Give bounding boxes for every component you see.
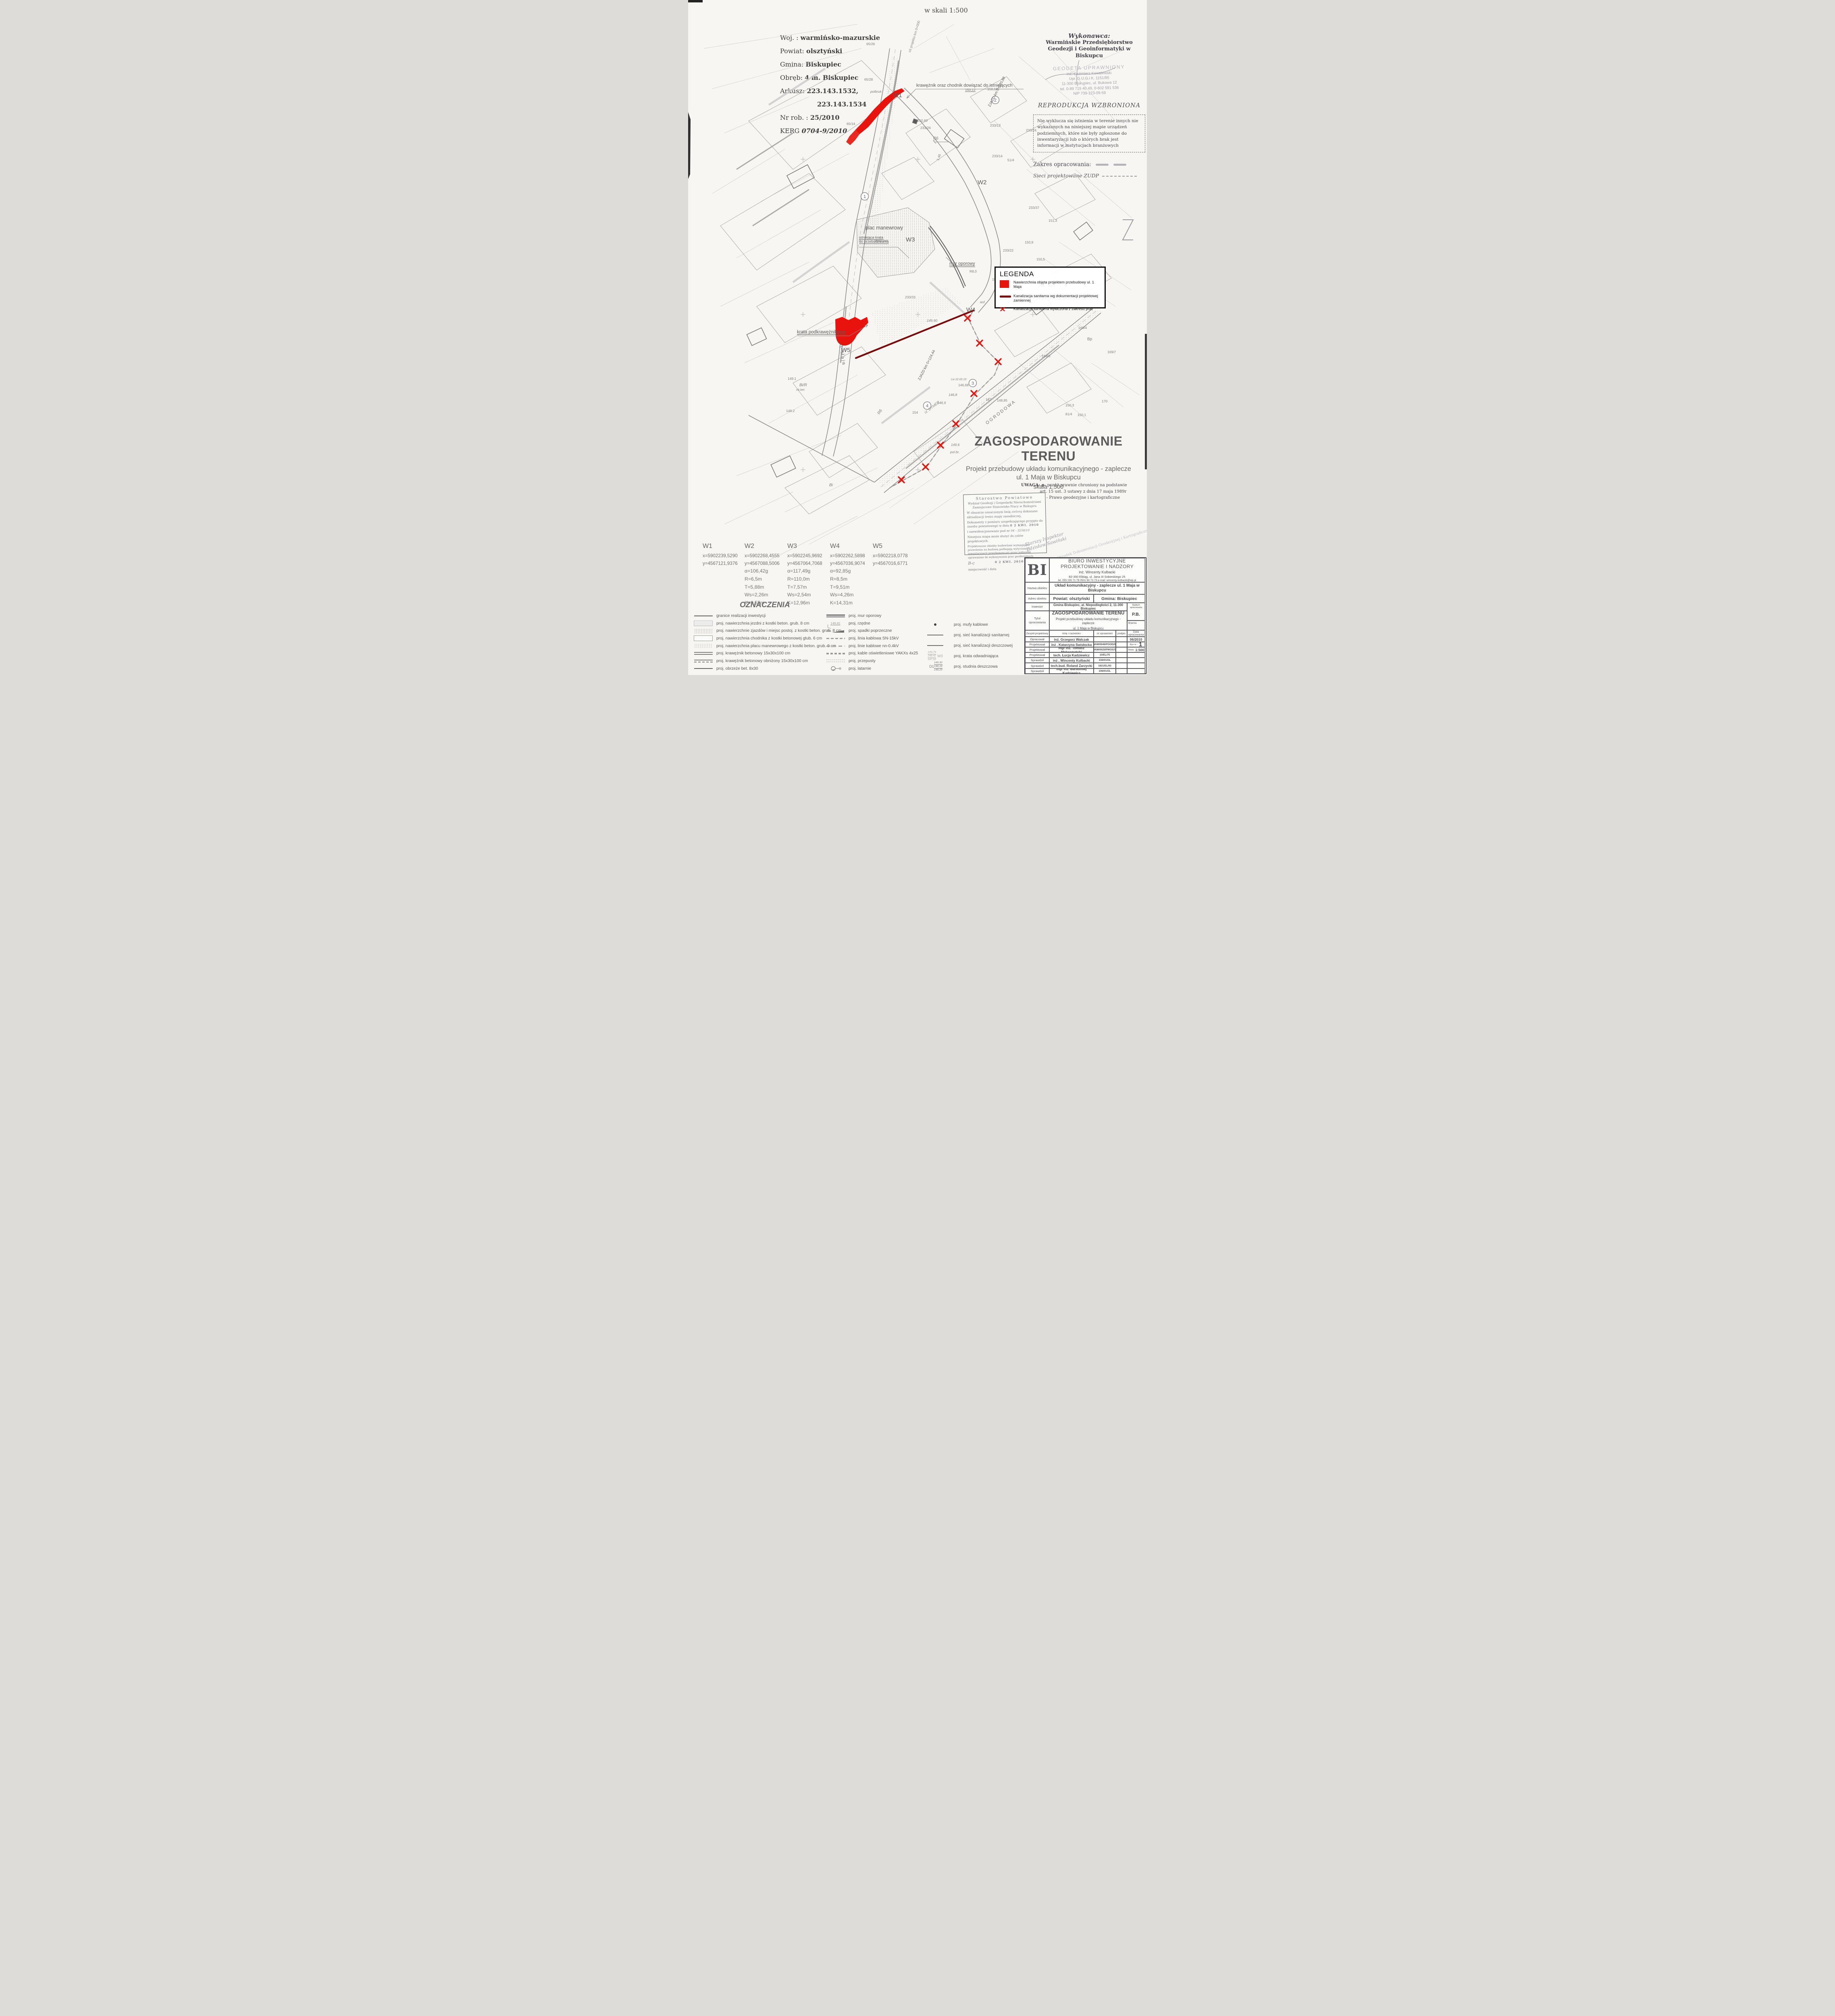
label-mur-oporowy: mur oporowy (949, 261, 975, 266)
vertex-id: W1 (703, 543, 745, 550)
circle-1: 1 (863, 194, 866, 199)
vertex-column-w4: W4 x=5902262,5898 y=4567036,9074 α=92,85… (830, 543, 872, 607)
vertex-param: K=12,96m (787, 599, 829, 607)
maneuvering-surface-icon (694, 644, 713, 648)
date-opracowania: 06/2010 (1127, 637, 1145, 642)
legend-item: Kanalizacja sanitarna wg dokumentacji pr… (1000, 294, 1101, 303)
vertex-param: K=14,31m (830, 599, 872, 607)
scatter-label: 233/33 (905, 295, 915, 299)
tytul-sub-1: Projekt przebudowy układu komunikacyjneg… (1050, 617, 1127, 625)
scatter-label: 149.2 (786, 409, 795, 413)
tytul-title: ZAGOSPODAROWANIE TERENU (1052, 611, 1125, 616)
retaining-wall-icon (826, 614, 845, 617)
tytul-label: Tytuł opracowania (1025, 611, 1049, 630)
person-name: inż . Katarzyna Swisłocka (1049, 642, 1094, 647)
nazwa-value: Układ komunikacyjny - zaplecze ul. 1 Maj… (1049, 582, 1145, 594)
adres-gmina: Gmina: Biskupiec (1094, 594, 1145, 603)
drawing-subtitle-1: Projekt przebudowy układu komunikacyjneg… (949, 465, 1147, 473)
manhole-elev-3: 148,25 (934, 669, 942, 672)
label-istniejaca-krata-2: do przebudowania (859, 240, 889, 244)
team-header-role: Zespół projektowy (1025, 630, 1049, 637)
oznaczenia-label: proj. kable oświetleniowe YAKXs 4x25 (849, 651, 918, 656)
vertex-x: x=5902268,4555 (745, 552, 786, 560)
legend-item-label: Kanalizacja sanitarna wyłaczona z zakres… (1013, 307, 1093, 311)
oznaczenia-title: OZNACZENIA (740, 601, 790, 610)
vertex-y: y=4567064,7068 (787, 560, 829, 568)
person-cert: 1821/EL/93 (1094, 663, 1116, 668)
vertex-label-w2: W2 (978, 179, 987, 186)
cable-joint-icon (934, 623, 936, 626)
skala-label: Skala: (1128, 649, 1134, 651)
team-header-name: imię i nazwisko (1049, 630, 1094, 637)
scatter-label: 150,12 (965, 88, 976, 92)
lighting-cable-icon (826, 653, 845, 654)
oznaczenia-label: proj. linie kablowe nn-0.4kV (849, 644, 899, 648)
company-logo: BI (1025, 558, 1049, 582)
person-cert: 106/01/OL (1094, 669, 1116, 674)
scatter-label: 149,90 (927, 319, 937, 323)
grate-elev-1: 149,76 (928, 651, 936, 654)
scatter-label: 233/37 (1029, 206, 1039, 210)
red-area-swatch-icon (1000, 280, 1009, 288)
vertex-x: x=5902239,5290 (703, 552, 745, 560)
drawing-title: ZAGOSPODAROWANIE TERENU (949, 434, 1147, 464)
oznaczenia-label: proj. nawierzchnie zjazdów i miejsc post… (716, 629, 841, 633)
vertex-param: Ws=2,26m (745, 591, 786, 599)
roadway-surface-icon (694, 621, 713, 626)
storm-manhole-icon: D1 149,30148,16148,25 (920, 661, 950, 671)
lowered-curb-icon (694, 660, 713, 662)
scatter-label: R6 (933, 136, 938, 141)
rys-nr-cell: Rys nr :1 (1127, 642, 1145, 647)
drain-grate-icon: 149,76148,42147,52 W3 (920, 651, 950, 661)
nazwa-label: Nazwa obiektu (1025, 582, 1049, 594)
vertex-y: y=4567036,9074 (830, 560, 872, 568)
person-role: Sprawdził (1025, 669, 1049, 674)
legend-item-label: Nawierzchnia objęta projektem przebudowy… (1013, 280, 1101, 289)
stamp-body-1: W obszarze oznaczonym linią zieloną doko… (967, 509, 1042, 519)
drawing-subtitle-2: ul. 1 Maja w Biskupcu (949, 474, 1147, 481)
uwaga-line-1: - punkt prawnie chroniony na podstawie (1044, 483, 1127, 487)
scatter-label: 233/24 (1026, 128, 1036, 132)
person-name: mgr inż. Tomasz Mrówczyński (1049, 647, 1094, 652)
vertex-label-w3: W3 (906, 236, 915, 243)
cable-nn04kv-icon (826, 646, 845, 647)
person-name: tech. Łucja Kadziewicz (1049, 652, 1094, 658)
scatter-label: 233/14 (992, 154, 1003, 158)
stadium-cell: Stadium opracowania P.B. (1127, 603, 1145, 621)
person-signature-cell (1116, 652, 1127, 658)
scatter-label: 233/22 (1003, 248, 1013, 252)
protected-point-icon: ● (1041, 483, 1044, 487)
vertex-param: α=117,49g (787, 567, 829, 575)
oznaczenia-label: proj. przepusty (849, 659, 876, 663)
circle-3: 3 (972, 381, 974, 386)
tytul-label-2: opracowania (1029, 621, 1046, 625)
scatter-label: asf. (980, 300, 986, 304)
person-cert (1094, 637, 1116, 642)
branza-cell: Branża (1127, 621, 1145, 630)
r ys-value: 1 (1139, 642, 1142, 647)
grate-symbol-name: W3 (937, 654, 943, 658)
scatter-label: 170 (1102, 399, 1107, 403)
label-istniejaca-krata-1: istniejąca krata (859, 235, 883, 240)
vertex-param: T=5,88m (745, 583, 786, 591)
person-name: inż. Grzegorz Walczak (1049, 637, 1094, 642)
person-name: inż . Wincenty Kulbacki (1049, 658, 1094, 663)
scatter-label: 65/14 (847, 122, 855, 126)
person-signature-cell (1116, 647, 1127, 652)
scatter-label: 168/4 (1078, 326, 1087, 330)
stamp-handwriting: 04 - 3258/10 (1011, 529, 1030, 533)
vertex-param: α=92,85g (830, 567, 872, 575)
scatter-label: 169/7 (1107, 350, 1116, 354)
scatter-label: 150,9 (1025, 240, 1033, 244)
storm-sewer-icon (927, 645, 943, 646)
oznaczenia-label: proj. sieć kanalizacji sanitarnej (954, 633, 1009, 637)
oznaczenia-label: granice realizacji inwestycji (716, 614, 766, 618)
rys-label: Rys nr : (1130, 644, 1138, 646)
vertex-id: W3 (787, 543, 829, 550)
person-signature-cell (1116, 669, 1127, 674)
vertex-column-w1: W1 x=5902239,5290 y=4567121,9376 (703, 543, 745, 567)
manhole-symbol-name: D1 (929, 664, 934, 669)
team-header-date: Data opracowania (1127, 630, 1145, 637)
scatter-label: 168/6 (1042, 354, 1050, 358)
person-signature-cell (1116, 642, 1127, 647)
vertex-id: W4 (830, 543, 872, 550)
vertex-y: y=4567088,5006 (745, 560, 786, 568)
vertex-param: R=110,0m (787, 575, 829, 583)
stadium-value: P.B. (1132, 612, 1140, 617)
oznaczenia-label: proj. krawężnik betonowy obniżony 15x30x… (716, 659, 808, 663)
vertex-param: T=7,57m (787, 583, 829, 591)
person-cert: 156/01/OL (1094, 658, 1116, 663)
scatter-label: 146,68 (958, 383, 969, 387)
stamp-body-3: i zaewidencjonowano pod nr 04 - 3258/10 (967, 528, 1043, 534)
map-sheet: 1 2 3 4 w skali 1:500 Woj. : warmińsko-m… (688, 0, 1147, 675)
vertex-x: x=5902218,0778 (873, 552, 915, 560)
adres-powiat: Powiat: olsztyński (1049, 594, 1094, 603)
empty-cell (1127, 669, 1145, 674)
legend-title: LEGENDA (1000, 270, 1101, 278)
vertex-y: y=4567121,9376 (703, 560, 745, 568)
boundary-line-icon (694, 615, 713, 616)
scatter-label: 146,8 (949, 393, 957, 397)
stamp-handwriting: zieloną (1011, 510, 1022, 514)
scatter-label: ch.bet (796, 388, 804, 392)
empty-cell (1127, 658, 1145, 663)
person-signature-cell (1116, 663, 1127, 668)
vertex-label-w4: W4 (966, 306, 976, 313)
company-name-1: BIURO INWESTYCYJNE (1068, 558, 1126, 564)
vertex-column-w5: W5 x=5902218,0778 y=4567016,6771 (873, 543, 915, 567)
person-signature-cell (1116, 637, 1127, 642)
uwaga-label: UWAGA: (1021, 483, 1040, 487)
cross-slope-icon: 2% (827, 629, 845, 633)
oznaczenia-label: proj. latarnie (849, 666, 871, 671)
stamp-handwriting: B-c (968, 561, 975, 566)
culvert-icon (826, 660, 845, 662)
retaining-wall (928, 226, 965, 288)
scatter-label: 65/26 (866, 42, 875, 46)
vertex-param: α=106,42g (745, 567, 786, 575)
company-name-2: PROJEKTOWANIE I NADZORY (1061, 564, 1134, 570)
cable-sn15kv-icon (826, 638, 845, 639)
label-istniejaca-krata: istniejąca kratado przebudowania (859, 235, 889, 244)
company-address: 82-300 Elbląg, ul. Jana III Sobieskiego … (1069, 575, 1125, 579)
vertex-x: x=5902262,5898 (830, 552, 872, 560)
stamp-text: zasobu powiatowego w dniu (967, 524, 1009, 529)
scatter-label: R8,0 (970, 269, 977, 273)
driveway-surface-icon (694, 629, 713, 633)
stamp-text: aktualizacji treści mapy zasadniczej. (967, 514, 1021, 519)
legend-item: Nawierzchnia objęta projektem przebudowy… (1000, 280, 1101, 289)
stamp-body-2: Dokumenty z pomiaru uzupełniającego przy… (967, 519, 1043, 529)
vertex-param: R=6,5m (745, 575, 786, 583)
empty-cell (1127, 663, 1145, 668)
company-owner: inż. Wincenty Kulbacki (1079, 570, 1115, 574)
scatter-label: Lw 22.03.10 (951, 378, 966, 381)
empty-cell (1127, 652, 1145, 658)
oznaczenia-column-3: proj. mufy kablowe proj. sieć kanalizacj… (920, 619, 1013, 672)
scatter-label: 167 (986, 398, 991, 402)
oznaczenia-label: proj. nawierzchnia chodnika z kostki bet… (716, 636, 822, 641)
person-role: Projektował (1025, 647, 1049, 652)
scatter-label: 81/4 (1065, 412, 1072, 416)
skala-cell: Skala:1:500 (1127, 647, 1145, 652)
person-role: Sprawdził (1025, 658, 1049, 663)
scatter-label: Bp (1087, 337, 1092, 342)
person-cert: 10/EL/75 (1094, 652, 1116, 658)
person-role: Opracował (1025, 637, 1049, 642)
scatter-label: 233/26 (920, 126, 931, 130)
person-role: Sprawdził (1025, 663, 1049, 668)
stamp-date: 0 2 KWI. 2010 (995, 560, 1024, 566)
scatter-label: 150,60 (917, 119, 928, 123)
vertex-id: W5 (873, 543, 915, 550)
person-role: Projektował (1025, 652, 1049, 658)
tytul-value: ZAGOSPODAROWANIE TERENU Projekt przebudo… (1049, 611, 1127, 630)
grate-elev-3: 147,52 (928, 658, 936, 661)
lantern-icon (830, 666, 842, 671)
stadium-label: Stadium opracowania (1128, 604, 1144, 609)
scatter-label: 150,3 (1065, 403, 1074, 407)
vertex-label-w1: W1 (893, 92, 902, 99)
vertex-y: y=4567016,6771 (873, 560, 915, 568)
oznaczenia-label: proj. nawierzchnia jezdni z kostki beton… (716, 621, 809, 626)
tytul-label-1: Tytuł (1034, 616, 1040, 621)
stamp-place-date-label: miejscowość i data (968, 567, 997, 572)
scatter-label: polbruk (870, 90, 882, 94)
inwestor-label: Inwestor (1025, 603, 1049, 611)
red-x-swatch-icon: ✕ (999, 307, 1006, 312)
person-cert: WAM/0025/PWOS/10 (1094, 647, 1116, 652)
oznaczenia-label: proj. linia kablowa SN-15kV (849, 636, 899, 641)
scatter-label: 51/4 (1007, 158, 1014, 162)
team-header-sign: podpis (1116, 630, 1127, 637)
scatter-label: Bi (829, 483, 833, 487)
oznaczenia-label: proj. obrzeże bet. 8x30 (716, 666, 758, 671)
elevation-icon: 149,81 (830, 622, 840, 625)
scatter-label: 150,1 (1078, 413, 1086, 417)
vertex-param: R=8,5m (830, 575, 872, 583)
sidewalk-surface-icon (694, 635, 713, 641)
legend-item-label: Kanalizacja sanitarna wg dokumentacji pr… (1013, 294, 1101, 303)
vertex-id: W2 (745, 543, 786, 550)
oznaczenia-label: proj. studnia deszczowa (954, 664, 998, 669)
oznaczenia-label: proj. krawężnik betonowy 15x30x100 cm (716, 651, 790, 656)
company-contact: tel. 055 235 71 78 0501 64 73 73 e-mail:… (1058, 579, 1136, 582)
vertex-param: T=9,51m (830, 583, 872, 591)
vertex-x: x=5902245,9692 (787, 552, 829, 560)
vertex-column-w2: W2 x=5902268,4555 y=4567088,5006 α=106,4… (745, 543, 786, 607)
scatter-label: Bi/R (799, 383, 807, 387)
person-cert: WAM/0046/POOD/09 (1094, 642, 1116, 647)
oznaczenia-label: proj. rzędne (849, 621, 870, 626)
skala-value: 1:500 (1135, 648, 1144, 652)
oznaczenia-label: proj. krata odwadniająca (954, 654, 998, 658)
person-name: tech.bud. Roland Zarzycki (1049, 663, 1094, 668)
team-header-cert: nr uprawnień (1094, 630, 1116, 637)
edging-icon (694, 668, 713, 669)
stamp-text: i zaewidencjonowano pod nr (967, 529, 1010, 534)
vertex-param: Ws=2,54m (787, 591, 829, 599)
curb-icon (694, 652, 713, 655)
scatter-label: 148,85 (997, 398, 1007, 402)
vertex-param: Ws=4,26m (830, 591, 872, 599)
grate-elev-2: 148,42 (928, 654, 936, 658)
adres-label: Adres obiektu (1025, 594, 1049, 603)
inwestor-value: Gmina Biskupiec, al. Niepodległości 2, 1… (1049, 603, 1127, 611)
slope-value: 2% (827, 629, 831, 633)
oznaczenia-label: proj. nawierzchnia placu manewrowego z k… (716, 644, 836, 648)
sanitary-sewer-icon (927, 635, 943, 636)
scatter-label: 149.1 (788, 377, 796, 381)
stamp-text: dokonano (1023, 509, 1038, 513)
oznaczenia-column-1: granice realizacji inwestycji proj. nawi… (694, 612, 841, 673)
oznaczenia-label: proj. mufy kablowe (954, 623, 988, 627)
person-name: mgr inż. Bartłomiej Kadziewicz (1049, 669, 1094, 674)
scatter-label: 151,3 (1049, 219, 1057, 223)
drawing-title-block: ZAGOSPODAROWANIE TERENU Projekt przebudo… (949, 434, 1147, 490)
person-signature-cell (1116, 658, 1127, 663)
scatter-label: 65/28 (864, 77, 873, 81)
oznaczenia-column-2: proj. mur oporowy 149,81proj. rzędne 2%p… (826, 612, 918, 673)
stamp-date: 0 2 KWI. 2010 (1010, 523, 1039, 527)
label-plac-manewrowy: plac manewrowy (865, 225, 903, 231)
manhole-elev-1: 149,30 (934, 661, 942, 664)
z-mark-icon (1123, 220, 1133, 240)
scatter-label: 150,5 (1036, 257, 1045, 261)
title-block-table: BI BIURO INWESTYCYJNE PROJEKTOWANIE I NA… (1024, 557, 1146, 674)
label-krata-podkraweznikowa: krata podkrawężnikowa (797, 330, 845, 335)
legend-box: LEGENDA Nawierzchnia objęta projektem pr… (994, 267, 1106, 308)
oznaczenia-label: proj. spadki poprzeczne (849, 629, 892, 633)
person-role: Projektował (1025, 642, 1049, 647)
oznaczenia-label: proj. sieć kanalizacji deszczowej (954, 644, 1013, 648)
vertex-column-w3: W3 x=5902245,9692 y=4567064,7068 α=117,4… (787, 543, 829, 607)
oznaczenia-label: proj. mur oporowy (849, 614, 882, 618)
tytul-sub-2: ul. 1 Maja w Biskupcu (1073, 627, 1103, 630)
dark-red-line-swatch-icon (1000, 296, 1011, 298)
company-info: BIURO INWESTYCYJNE PROJEKTOWANIE I NADZO… (1049, 558, 1145, 582)
scatter-label: 154 (912, 410, 918, 414)
scatter-label: 233/13 (990, 123, 1001, 127)
manhole-elev-2: 148,16 (934, 664, 942, 669)
legend-item: ✕ Kanalizacja sanitarna wyłaczona z zakr… (1000, 307, 1101, 312)
